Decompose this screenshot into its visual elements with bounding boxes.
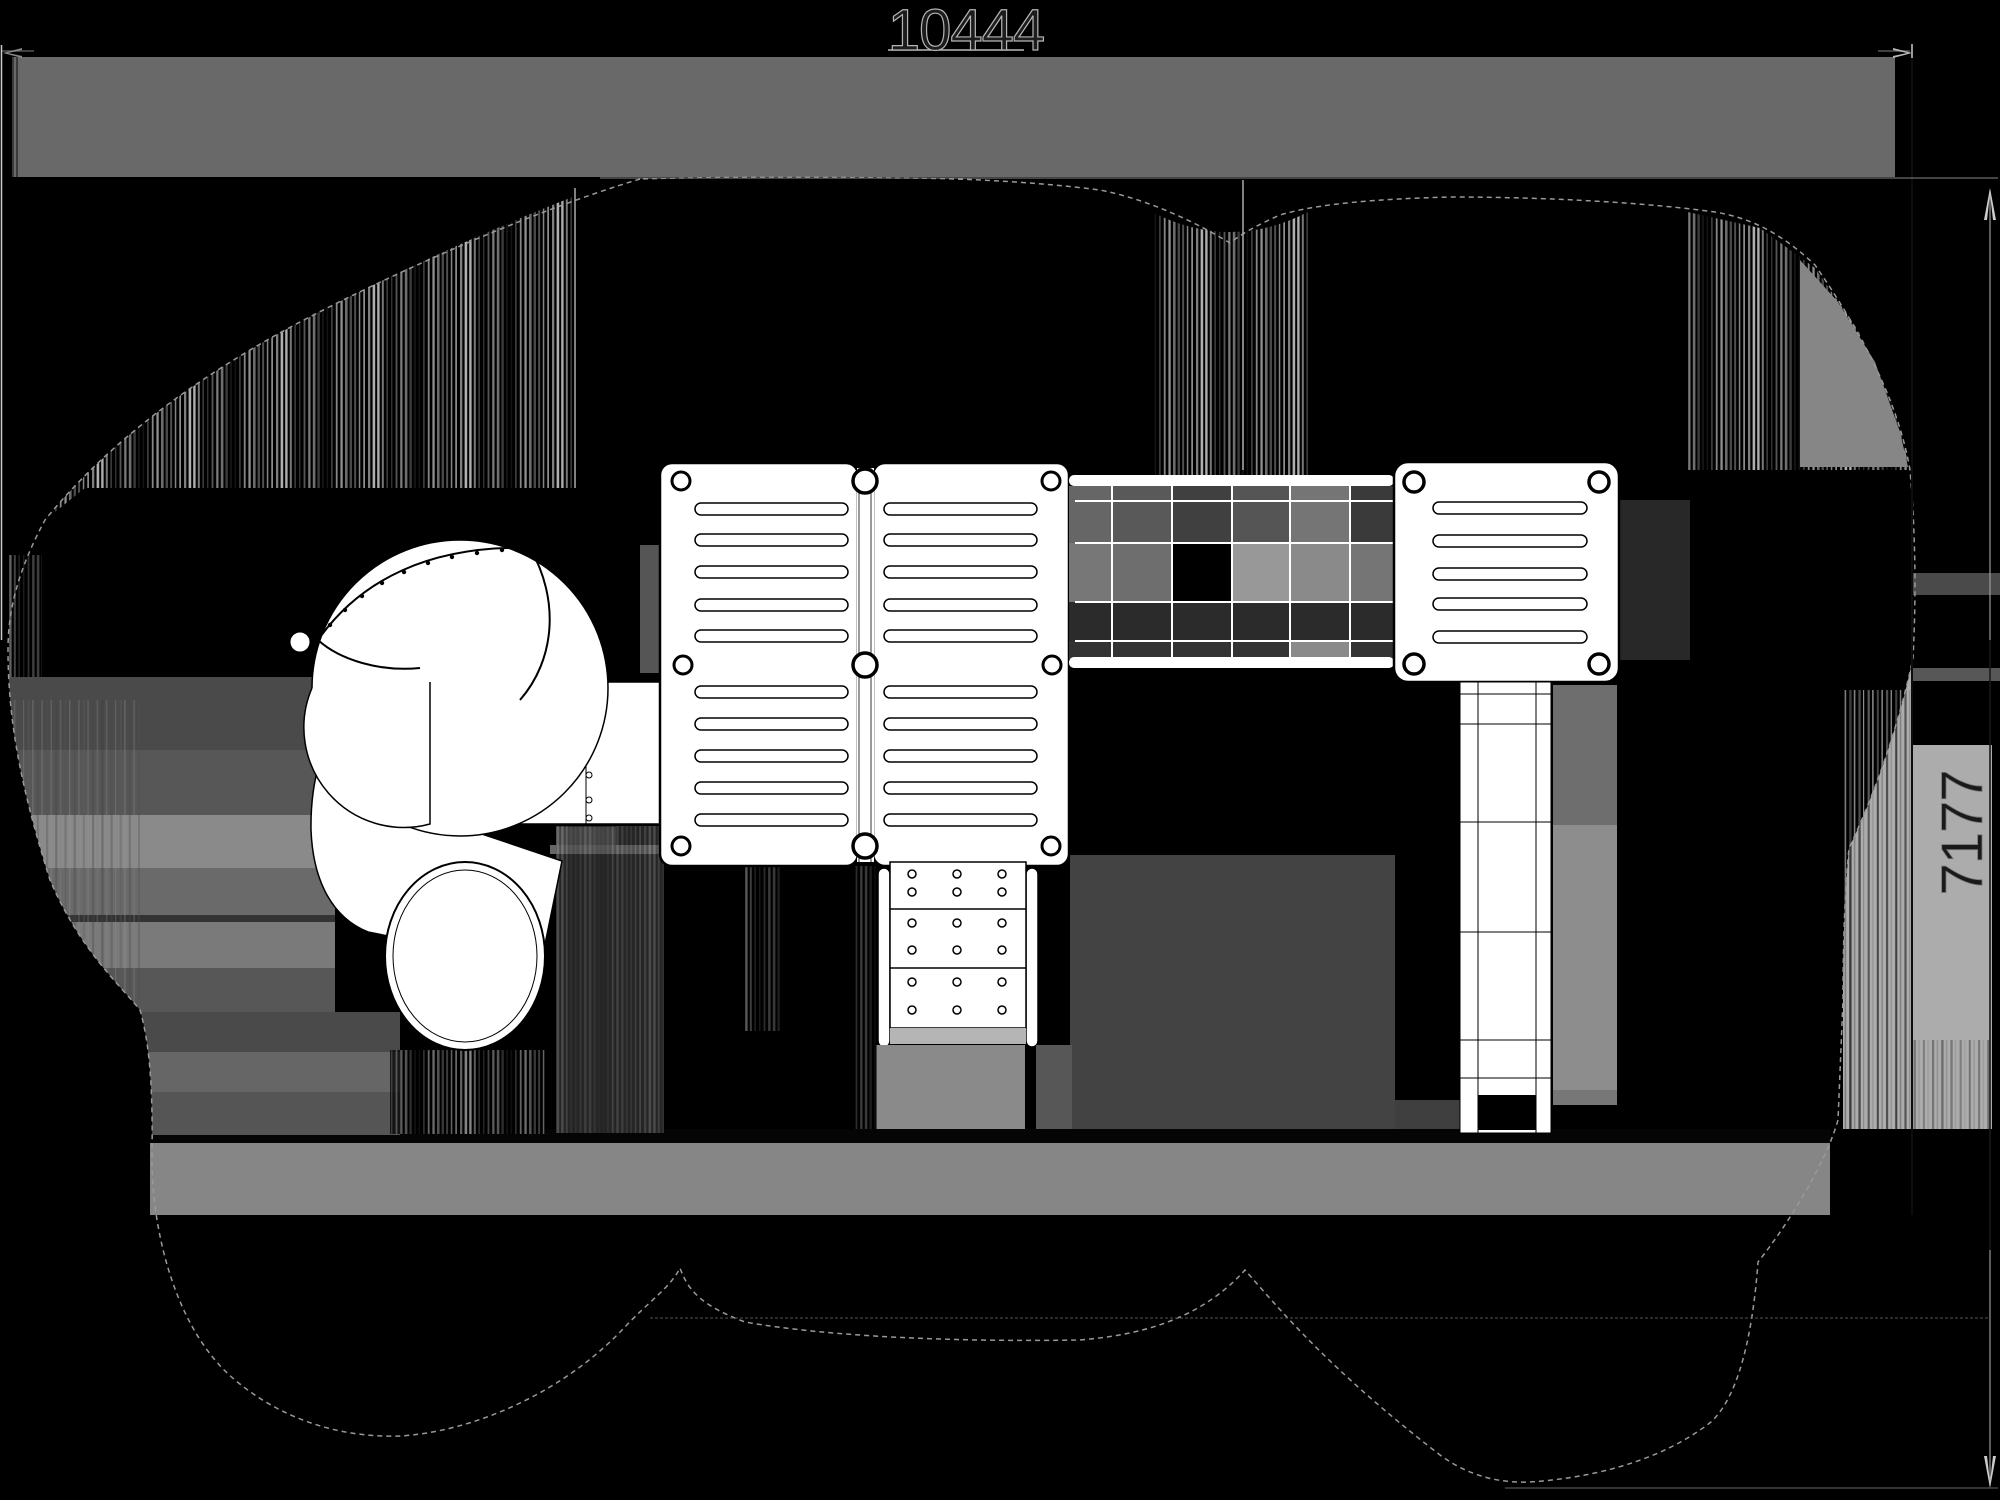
svg-text:7177: 7177 xyxy=(1930,770,1995,895)
svg-text:10444: 10444 xyxy=(888,0,1044,63)
